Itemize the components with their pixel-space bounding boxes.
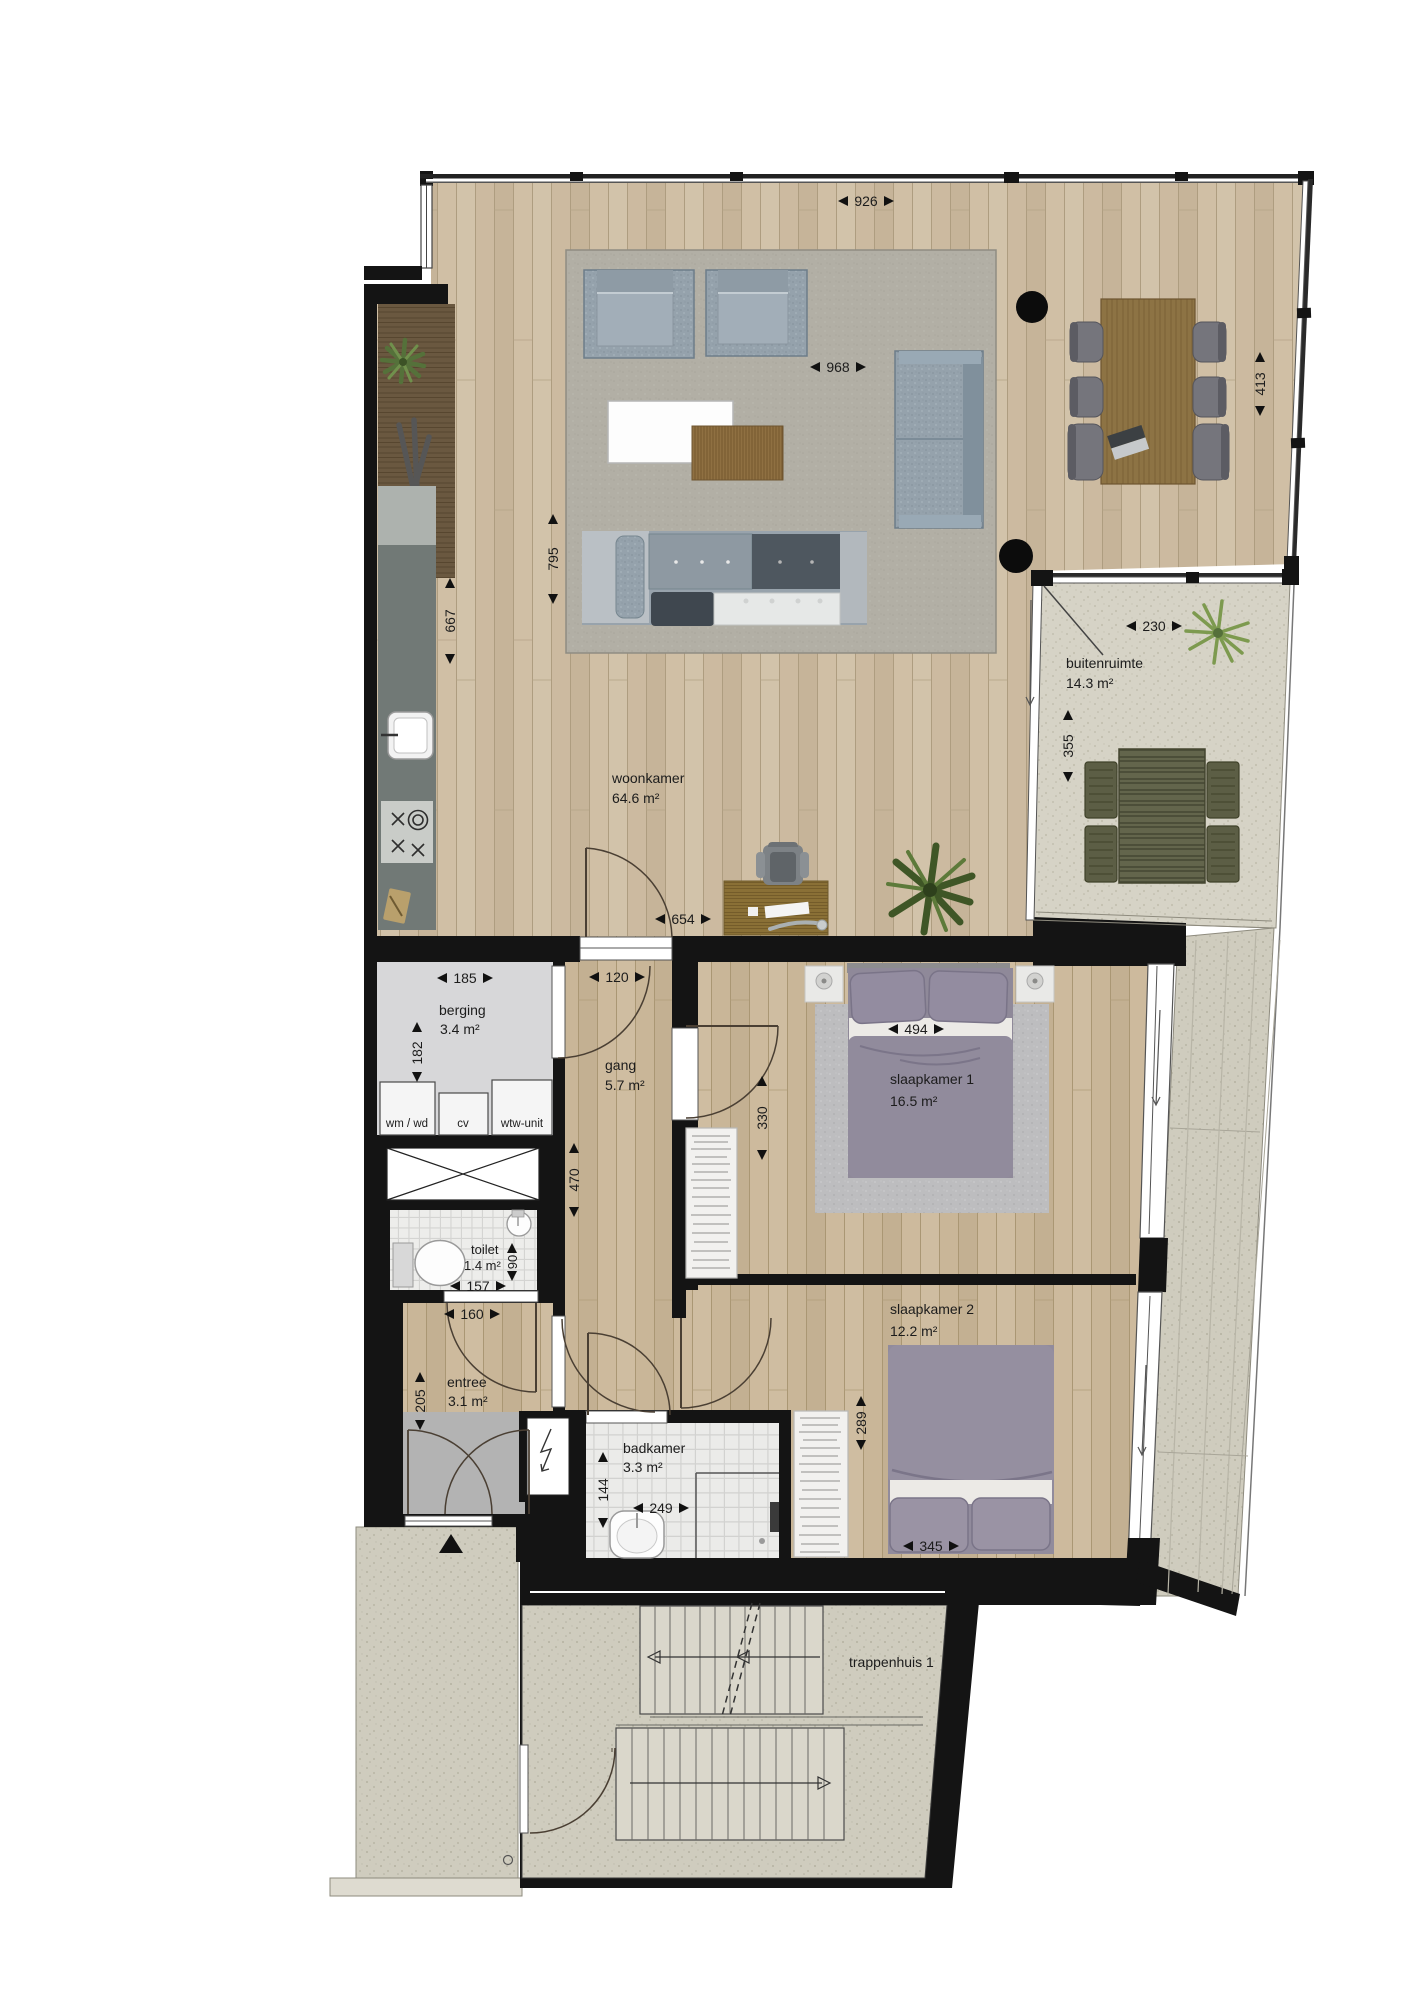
svg-text:289: 289 (853, 1411, 869, 1435)
svg-text:667: 667 (442, 609, 458, 633)
svg-text:355: 355 (1060, 734, 1076, 758)
svg-text:1.4 m²: 1.4 m² (464, 1258, 502, 1273)
svg-text:3.4 m²: 3.4 m² (440, 1021, 480, 1037)
svg-text:3.1 m²: 3.1 m² (448, 1393, 488, 1409)
svg-text:120: 120 (605, 969, 629, 985)
svg-text:249: 249 (649, 1500, 673, 1516)
svg-text:toilet: toilet (471, 1242, 499, 1257)
svg-text:3.3 m²: 3.3 m² (623, 1459, 663, 1475)
svg-text:230: 230 (1142, 618, 1166, 634)
svg-text:926: 926 (854, 193, 878, 209)
svg-text:330: 330 (754, 1106, 770, 1130)
svg-text:654: 654 (671, 911, 695, 927)
svg-text:494: 494 (904, 1021, 928, 1037)
svg-text:470: 470 (566, 1168, 582, 1192)
svg-text:12.2 m²: 12.2 m² (890, 1323, 938, 1339)
svg-text:entree: entree (447, 1374, 487, 1390)
svg-text:795: 795 (545, 547, 561, 571)
svg-text:wm / wd: wm / wd (385, 1118, 428, 1130)
svg-text:gang: gang (605, 1057, 636, 1073)
svg-text:16.5 m²: 16.5 m² (890, 1093, 938, 1109)
svg-text:413: 413 (1252, 372, 1268, 396)
svg-text:64.6 m²: 64.6 m² (612, 790, 660, 806)
svg-text:182: 182 (409, 1041, 425, 1065)
svg-text:968: 968 (826, 359, 850, 375)
svg-text:144: 144 (595, 1478, 611, 1502)
svg-text:345: 345 (919, 1538, 943, 1554)
svg-text:trappenhuis 1: trappenhuis 1 (849, 1654, 934, 1670)
svg-text:woonkamer: woonkamer (611, 770, 685, 786)
svg-text:slaapkamer 2: slaapkamer 2 (890, 1301, 974, 1317)
svg-text:badkamer: badkamer (623, 1440, 686, 1456)
svg-text:slaapkamer 1: slaapkamer 1 (890, 1071, 974, 1087)
svg-text:160: 160 (460, 1306, 484, 1322)
svg-text:5.7 m²: 5.7 m² (605, 1077, 645, 1093)
svg-text:14.3 m²: 14.3 m² (1066, 675, 1114, 691)
svg-text:185: 185 (453, 970, 477, 986)
svg-text:berging: berging (439, 1002, 486, 1018)
svg-text:205: 205 (412, 1389, 428, 1413)
svg-text:wtw-unit: wtw-unit (500, 1118, 544, 1130)
svg-text:90: 90 (505, 1255, 520, 1269)
svg-text:cv: cv (457, 1118, 469, 1130)
svg-text:157: 157 (466, 1278, 490, 1294)
svg-text:buitenruimte: buitenruimte (1066, 655, 1143, 671)
